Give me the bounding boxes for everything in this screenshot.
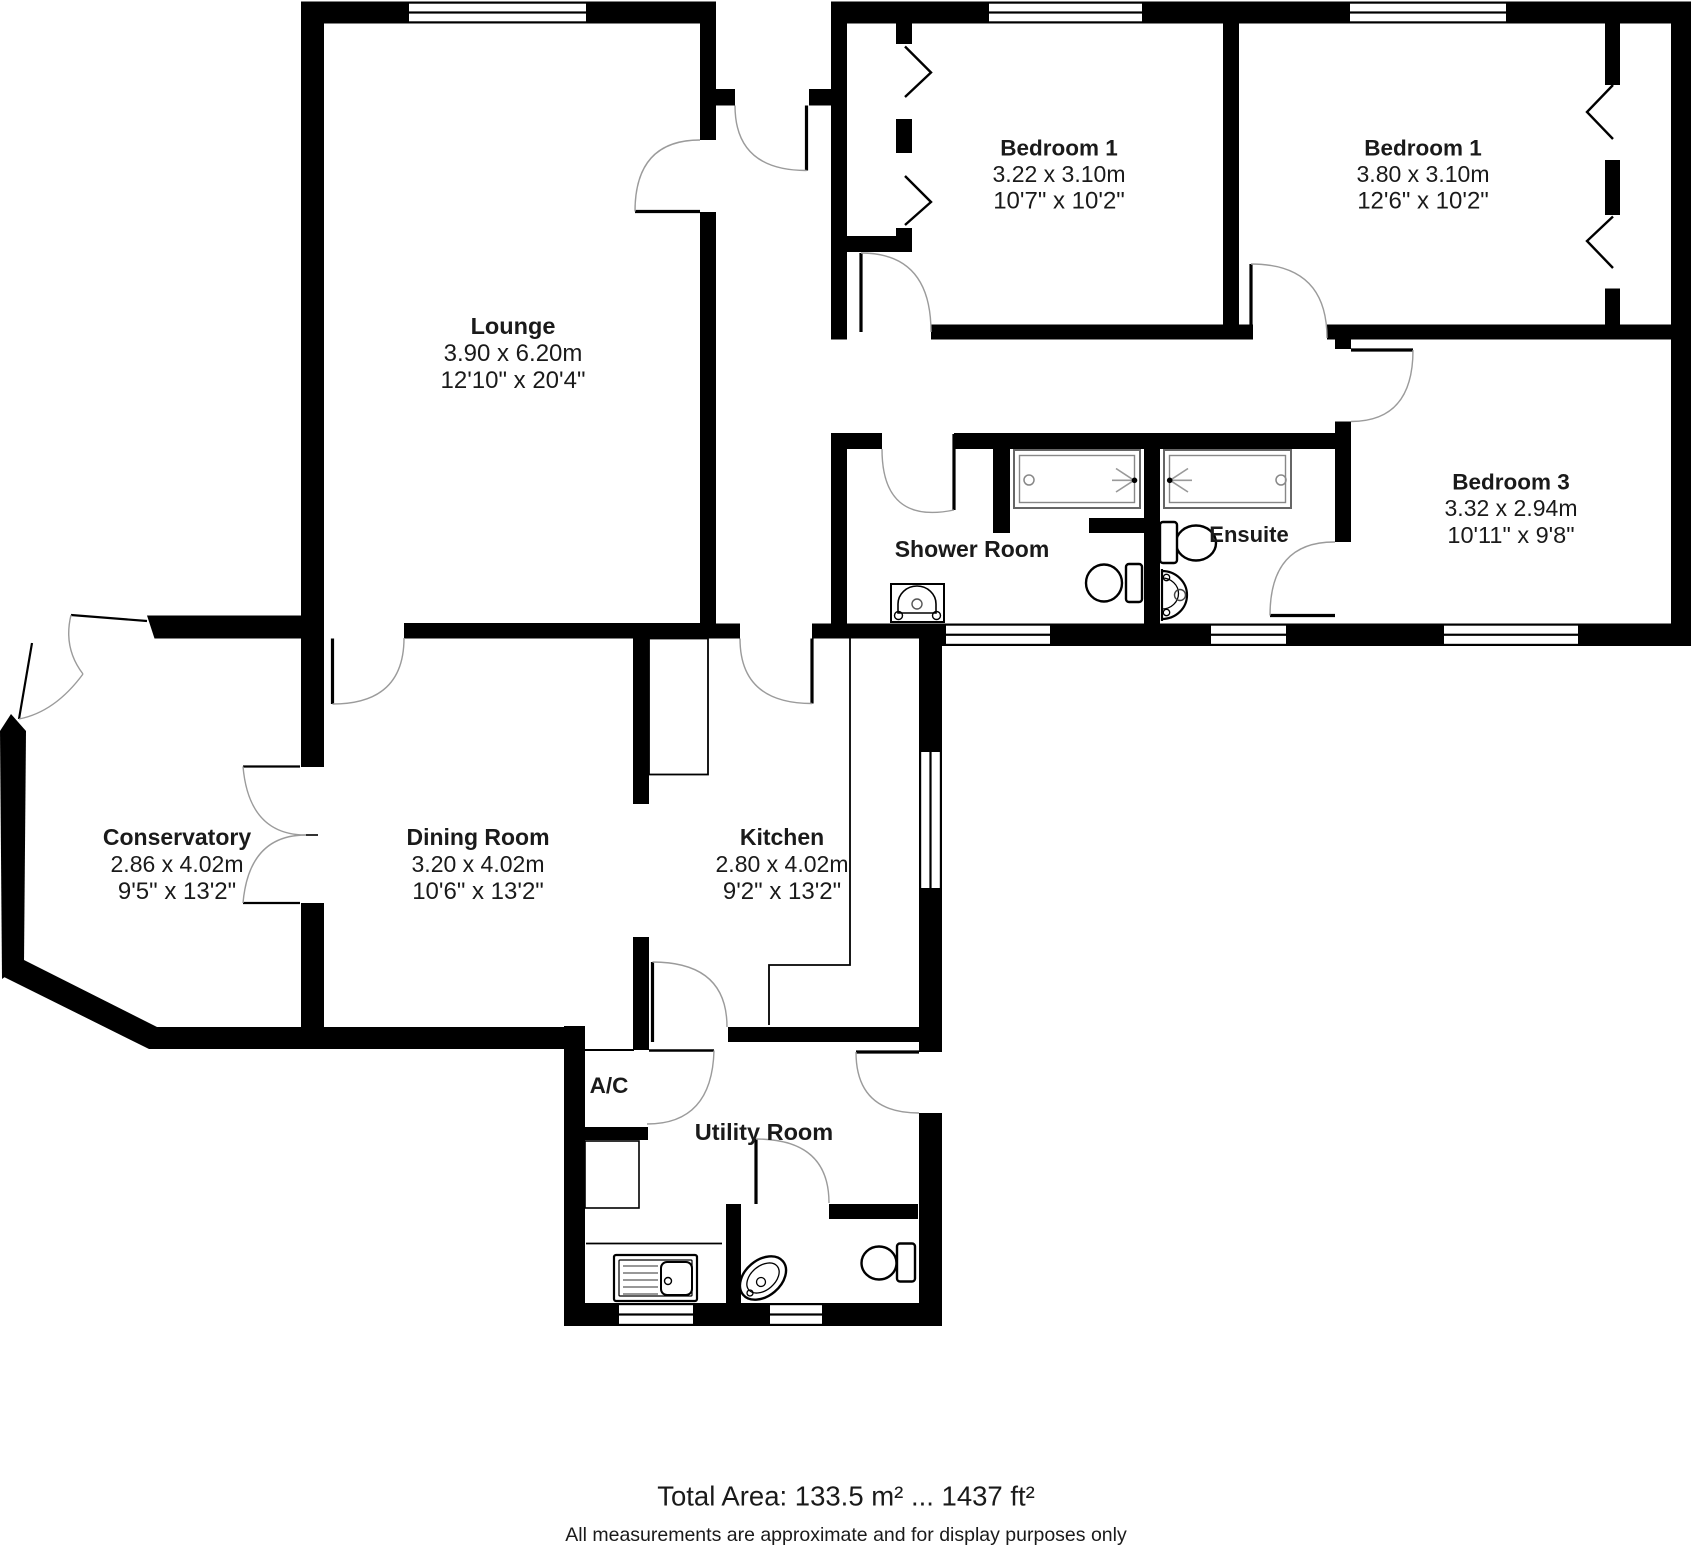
svg-text:3.80 x 3.10m: 3.80 x 3.10m [1357, 161, 1490, 187]
svg-text:3.22 x 3.10m: 3.22 x 3.10m [993, 161, 1126, 187]
svg-text:3.20 x 4.02m: 3.20 x 4.02m [412, 851, 545, 877]
svg-text:9'2" x 13'2": 9'2" x 13'2" [723, 878, 841, 905]
svg-text:Dining Room: Dining Room [406, 824, 549, 850]
svg-text:Lounge: Lounge [471, 313, 556, 339]
svg-text:3.32 x 2.94m: 3.32 x 2.94m [1445, 495, 1578, 521]
svg-text:2.86 x 4.02m: 2.86 x 4.02m [111, 851, 244, 877]
svg-text:All measurements are approxima: All measurements are approximate and for… [565, 1524, 1127, 1546]
svg-text:A/C: A/C [590, 1073, 629, 1098]
svg-text:9'5" x 13'2": 9'5" x 13'2" [118, 878, 236, 905]
svg-text:Kitchen: Kitchen [740, 824, 824, 850]
svg-text:Bedroom 3: Bedroom 3 [1452, 470, 1570, 495]
svg-text:Total Area: 133.5 m² ... 1437: Total Area: 133.5 m² ... 1437 ft² [657, 1481, 1035, 1512]
svg-text:Utility Room: Utility Room [695, 1119, 833, 1145]
svg-text:10'11" x 9'8": 10'11" x 9'8" [1447, 522, 1574, 548]
svg-text:12'10" x 20'4": 12'10" x 20'4" [441, 367, 586, 394]
svg-text:Bedroom 1: Bedroom 1 [1364, 136, 1482, 161]
svg-text:2.80 x 4.02m: 2.80 x 4.02m [716, 851, 849, 877]
svg-text:Conservatory: Conservatory [103, 824, 251, 850]
svg-text:10'6" x 13'2": 10'6" x 13'2" [412, 878, 544, 905]
svg-text:Shower Room: Shower Room [895, 536, 1050, 562]
svg-text:3.90 x 6.20m: 3.90 x 6.20m [444, 340, 583, 367]
svg-text:12'6" x 10'2": 12'6" x 10'2" [1357, 188, 1489, 215]
svg-text:10'7" x 10'2": 10'7" x 10'2" [993, 188, 1125, 215]
svg-text:Bedroom 1: Bedroom 1 [1000, 136, 1118, 161]
svg-text:Ensuite: Ensuite [1209, 522, 1288, 547]
